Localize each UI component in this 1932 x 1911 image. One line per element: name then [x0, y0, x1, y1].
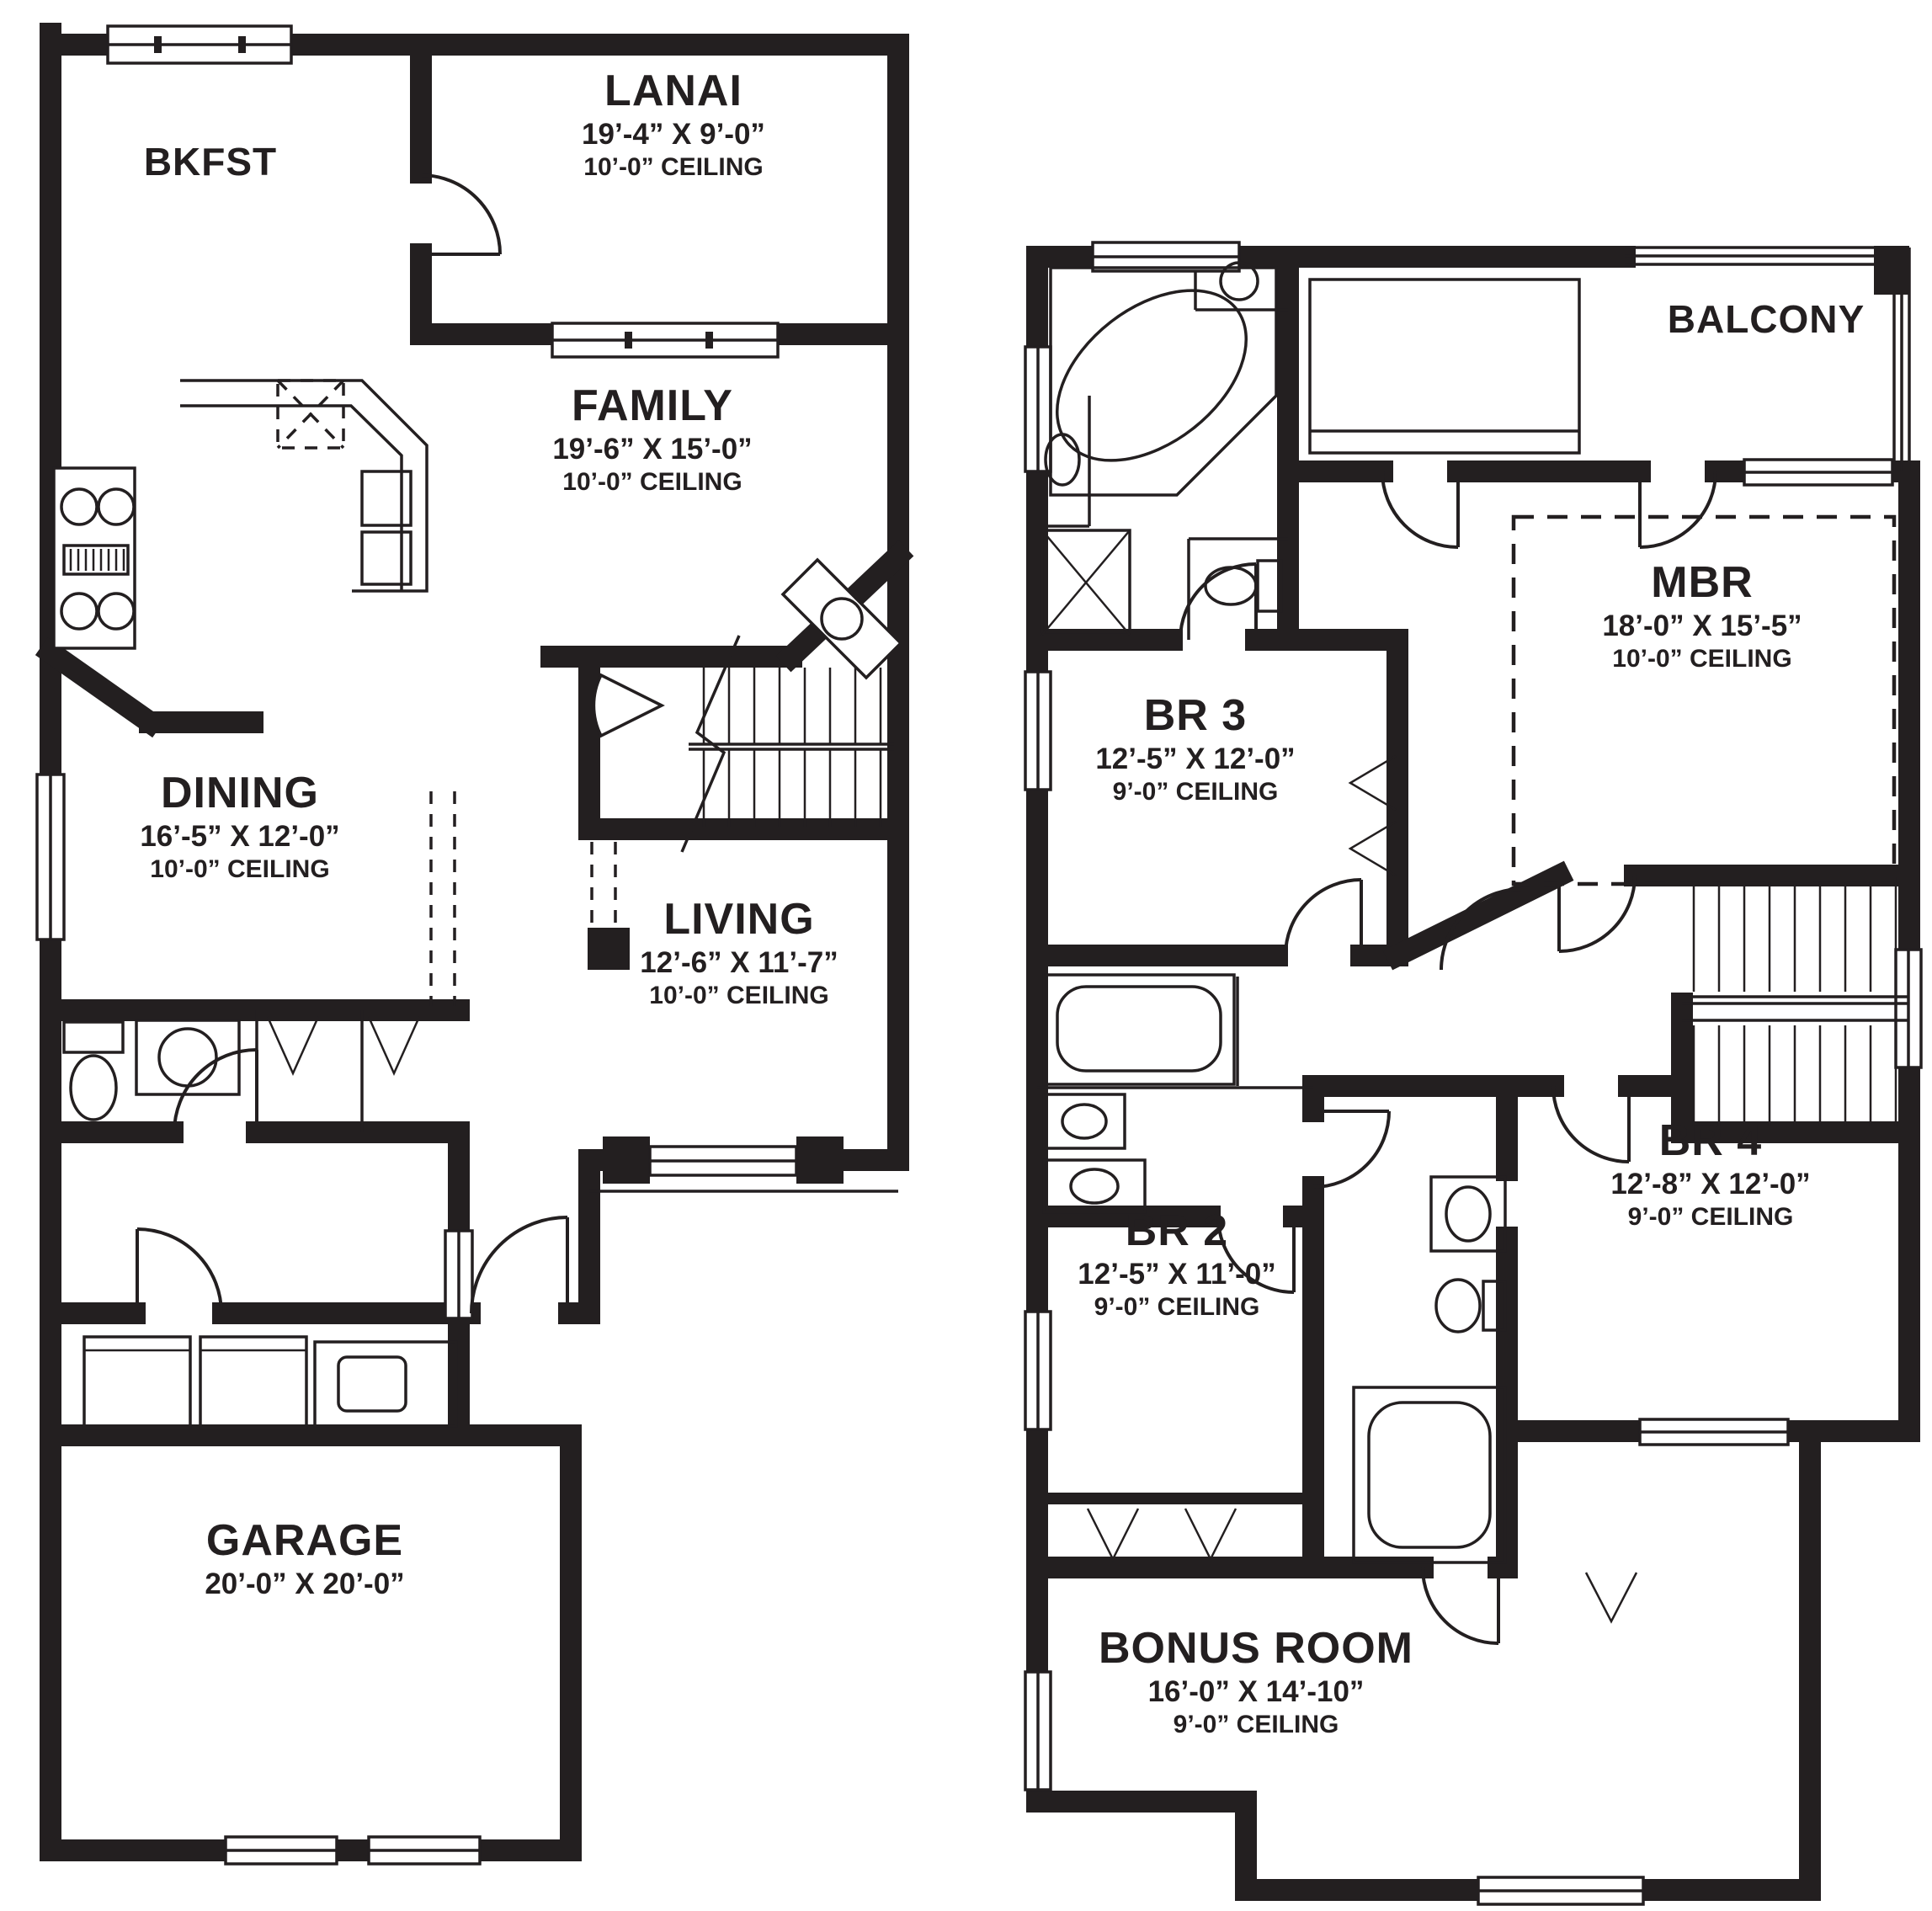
room-label-bkfst: BKFST — [144, 139, 277, 184]
vanity-sink-fixture — [1044, 1160, 1145, 1212]
closet-door-wedge — [593, 675, 662, 736]
room-label-br4: BR 4 12’-8” X 12’-0” 9’-0” CEILING — [1610, 1115, 1810, 1232]
room-dims: 18’-0” X 15’-5” — [1602, 609, 1802, 643]
room-name: BR 2 — [1078, 1206, 1275, 1257]
vanity-sink-fixture — [1431, 1177, 1505, 1251]
column — [588, 928, 630, 970]
room-dims: 19’-4” X 9’-0” — [582, 117, 765, 152]
room-dims: 12’-6” X 11’-7” — [640, 945, 838, 980]
door-arc — [1285, 880, 1361, 955]
room-ceiling: 10’-0” CEILING — [640, 981, 838, 1010]
laundry-sink-fixture — [315, 1342, 456, 1426]
room-name: BR 3 — [1095, 690, 1295, 742]
door-arc — [137, 1229, 221, 1313]
kitchen-island — [180, 381, 427, 591]
room-ceiling: 9’-0” CEILING — [1099, 1710, 1413, 1739]
door-arc — [1382, 471, 1458, 547]
room-ceiling: 10’-0” CEILING — [582, 152, 765, 182]
room-dims: 16’-5” X 12’-0” — [140, 819, 339, 854]
closet-hanger-icon — [1586, 1573, 1637, 1621]
room-name: BKFST — [144, 139, 277, 184]
room-label-family: FAMILY 19’-6” X 15’-0” 10’-0” CEILING — [552, 381, 752, 497]
bonus-door-arc — [1423, 1568, 1498, 1643]
room-name: LIVING — [640, 894, 838, 945]
room-dims: 12’-5” X 11’-0” — [1078, 1257, 1275, 1291]
range-fixture — [54, 468, 135, 648]
dryer-fixture — [200, 1337, 306, 1428]
corner-tub-fixture — [1025, 256, 1278, 495]
second-floor-stairs — [1682, 882, 1909, 1126]
toilet-fixture — [1206, 561, 1281, 611]
walk-in-closet-shelving — [1310, 279, 1579, 453]
closet-hanger-icon — [369, 1017, 419, 1073]
room-label-garage: GARAGE 20’-0” X 20’-0” — [205, 1515, 404, 1602]
room-ceiling: 9’-0” CEILING — [1095, 777, 1295, 806]
floorplan-drawing — [0, 0, 1932, 1911]
room-name: BONUS ROOM — [1099, 1623, 1413, 1674]
shower-fixture — [1042, 530, 1130, 635]
room-ceiling: 10’-0” CEILING — [140, 854, 339, 884]
toilet-fixture — [1436, 1280, 1505, 1332]
front-door-arc — [471, 1217, 567, 1313]
room-name: BALCONY — [1668, 296, 1865, 342]
bathtub-fixture — [1044, 975, 1234, 1084]
room-ceiling: 9’-0” CEILING — [1078, 1292, 1275, 1322]
porch-column — [603, 1136, 650, 1184]
floorplan-canvas: BKFST LANAI 19’-4” X 9’-0” 10’-0” CEILIN… — [0, 0, 1932, 1911]
room-ceiling: 10’-0” CEILING — [1602, 644, 1802, 673]
room-label-bonus: BONUS ROOM 16’-0” X 14’-10” 9’-0” CEILIN… — [1099, 1623, 1413, 1739]
room-dims: 16’-0” X 14’-10” — [1099, 1674, 1413, 1709]
room-label-living: LIVING 12’-6” X 11’-7” 10’-0” CEILING — [640, 894, 838, 1010]
bathtub-fixture — [1354, 1387, 1505, 1562]
door-arc — [421, 175, 500, 254]
room-label-balcony: BALCONY — [1668, 296, 1865, 342]
washer-fixture — [84, 1337, 190, 1428]
closet-hanger-icon — [268, 1017, 318, 1073]
room-dims: 12’-8” X 12’-0” — [1610, 1167, 1810, 1201]
porch-column — [796, 1136, 844, 1184]
room-name: BR 4 — [1610, 1115, 1810, 1167]
stair-door-arc — [1559, 876, 1635, 951]
powder-toilet-fixture — [64, 1022, 123, 1120]
room-name: DINING — [140, 768, 339, 819]
door-arc — [1313, 1111, 1389, 1187]
room-label-mbr: MBR 18’-0” X 15’-5” 10’-0” CEILING — [1602, 557, 1802, 673]
room-name: LANAI — [582, 66, 765, 117]
room-name: GARAGE — [205, 1515, 404, 1567]
room-name: FAMILY — [552, 381, 752, 432]
vanity-sink-fixture — [1044, 1094, 1125, 1148]
closet-hanger-icon — [1088, 1509, 1138, 1559]
room-ceiling: 9’-0” CEILING — [1610, 1202, 1810, 1232]
railing-post — [1874, 246, 1909, 295]
room-name: MBR — [1602, 557, 1802, 609]
room-label-dining: DINING 16’-5” X 12’-0” 10’-0” CEILING — [140, 768, 339, 884]
room-dims: 12’-5” X 12’-0” — [1095, 742, 1295, 776]
room-label-br2: BR 2 12’-5” X 11’-0” 9’-0” CEILING — [1078, 1206, 1275, 1322]
room-dims: 20’-0” X 20’-0” — [205, 1567, 404, 1601]
room-label-lanai: LANAI 19’-4” X 9’-0” 10’-0” CEILING — [582, 66, 765, 182]
room-ceiling: 10’-0” CEILING — [552, 467, 752, 497]
balcony-door-arc — [1640, 471, 1716, 547]
closet-hanger-icon — [1185, 1509, 1236, 1559]
room-dims: 19’-6” X 15’-0” — [552, 432, 752, 466]
balcony-railing — [1625, 246, 1909, 471]
room-label-br3: BR 3 12’-5” X 12’-0” 9’-0” CEILING — [1095, 690, 1295, 806]
